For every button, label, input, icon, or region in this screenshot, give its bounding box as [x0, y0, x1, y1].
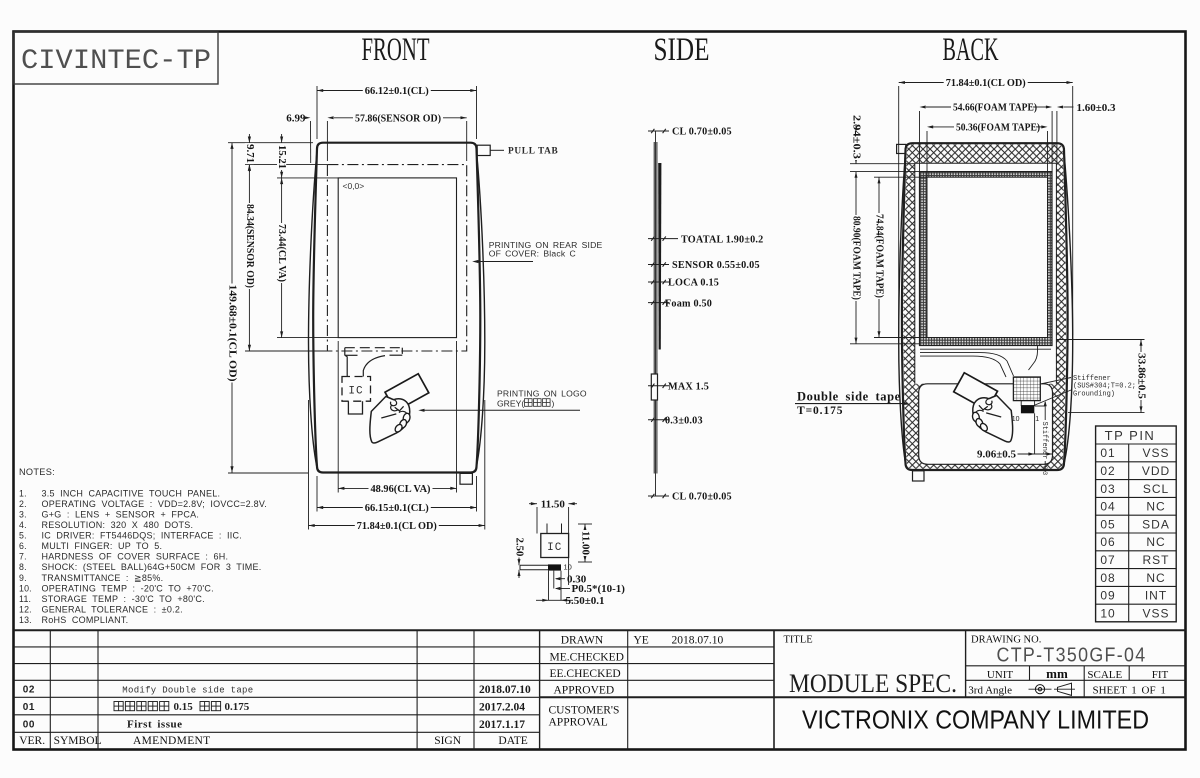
- svg-text:15.21: 15.21: [276, 145, 288, 169]
- svg-text:MODULE SPEC.: MODULE SPEC.: [789, 669, 957, 698]
- svg-text:2018.07.10: 2018.07.10: [479, 684, 531, 696]
- svg-text:T=0.175: T=0.175: [797, 405, 843, 417]
- svg-text:): ): [552, 399, 555, 409]
- svg-text:SCALE: SCALE: [1087, 669, 1122, 681]
- svg-text:01: 01: [23, 702, 35, 713]
- svg-text:3.5 INCH CAPACITIVE TOUCH PANE: 3.5 INCH CAPACITIVE TOUCH PANEL.: [42, 488, 221, 498]
- svg-text:MAX 1.5: MAX 1.5: [668, 382, 709, 393]
- svg-text:SENSOR 0.55±0.05: SENSOR 0.55±0.05: [672, 260, 760, 271]
- svg-text:AMENDMENT: AMENDMENT: [133, 735, 210, 747]
- svg-text:APPROVED: APPROVED: [554, 685, 615, 697]
- svg-text:3.: 3.: [19, 509, 27, 519]
- svg-text:0.15: 0.15: [174, 701, 194, 713]
- svg-text:66.15±0.1(CL): 66.15±0.1(CL): [365, 502, 429, 514]
- svg-text:2017.1.17: 2017.1.17: [479, 719, 525, 731]
- svg-text:0.3: 0.3: [1041, 466, 1048, 475]
- svg-text:2018.07.10: 2018.07.10: [672, 635, 724, 647]
- svg-text:08: 08: [1100, 571, 1115, 585]
- svg-text:NC: NC: [1146, 500, 1165, 514]
- svg-text:03: 03: [1100, 482, 1115, 496]
- svg-text:SYMBOL: SYMBOL: [54, 735, 102, 747]
- svg-text:05: 05: [1100, 517, 1115, 531]
- svg-text:SHEET 1 OF 1: SHEET 1 OF 1: [1093, 685, 1166, 697]
- svg-text:BACK: BACK: [943, 32, 999, 68]
- svg-text:02: 02: [23, 684, 35, 695]
- svg-text:TOATAL 1.90±0.2: TOATAL 1.90±0.2: [681, 234, 763, 245]
- svg-text:DATE: DATE: [498, 735, 527, 747]
- svg-text:OPERATING TEMP : -20'C TO +70': OPERATING TEMP : -20'C TO +70'C.: [42, 583, 214, 593]
- svg-text:2.94±0.3: 2.94±0.3: [850, 115, 862, 160]
- svg-text:CTP-T350GF-04: CTP-T350GF-04: [997, 645, 1147, 667]
- svg-text:OPERATING VOLTAGE : VDD=2.8V;: OPERATING VOLTAGE : VDD=2.8V; IOVCC=2.8V…: [42, 499, 268, 509]
- svg-text:71.84±0.1(CL OD): 71.84±0.1(CL OD): [357, 520, 437, 532]
- svg-text:TP PIN: TP PIN: [1105, 428, 1156, 443]
- svg-text:G+G : LENS + SENSOR + FPCA.: G+G : LENS + SENSOR + FPCA.: [42, 509, 200, 519]
- svg-text:mm: mm: [1046, 666, 1068, 681]
- svg-text:48.96(CL VA): 48.96(CL VA): [371, 483, 431, 495]
- svg-text:YE: YE: [634, 635, 649, 647]
- svg-text:FRONT: FRONT: [362, 32, 430, 68]
- svg-text:2017.2.04: 2017.2.04: [479, 701, 525, 713]
- svg-text:First issue: First issue: [127, 719, 182, 731]
- svg-text:11.: 11.: [19, 594, 31, 604]
- svg-text:VDD: VDD: [1142, 464, 1170, 478]
- svg-text:APPROVAL: APPROVAL: [549, 717, 608, 729]
- svg-text:CL 0.70±0.05: CL 0.70±0.05: [672, 492, 732, 503]
- svg-text:EE.CHECKED: EE.CHECKED: [550, 668, 621, 680]
- svg-text:NC: NC: [1146, 535, 1165, 549]
- svg-text:OF COVER: Black C: OF COVER: Black C: [489, 249, 576, 259]
- svg-text:ME.CHECKED: ME.CHECKED: [550, 651, 624, 663]
- svg-text:SCL: SCL: [1143, 482, 1169, 496]
- svg-text:1: 1: [1035, 416, 1039, 423]
- svg-text:IC: IC: [547, 542, 562, 554]
- svg-text:04: 04: [1100, 500, 1115, 514]
- svg-text:VICTRONIX COMPANY LIMITED: VICTRONIX COMPANY LIMITED: [802, 705, 1149, 735]
- svg-text:54.66(FOAM TAPE): 54.66(FOAM TAPE): [953, 102, 1037, 114]
- svg-text:NC: NC: [1146, 571, 1165, 585]
- svg-text:5.50±0.1: 5.50±0.1: [566, 595, 605, 607]
- svg-text:5.: 5.: [19, 531, 27, 541]
- svg-text:6.99: 6.99: [286, 113, 306, 125]
- svg-text:2.50: 2.50: [513, 538, 525, 557]
- svg-text:RoHS COMPLIANT.: RoHS COMPLIANT.: [42, 615, 129, 625]
- svg-text:84.34(SENSOR OD): 84.34(SENSOR OD): [244, 204, 256, 288]
- svg-text:(SUS#304;T=0.2;: (SUS#304;T=0.2;: [1073, 383, 1136, 391]
- svg-text:PRINTING ON LOGO: PRINTING ON LOGO: [497, 389, 587, 399]
- svg-text:50.36(FOAM TAPE): 50.36(FOAM TAPE): [956, 122, 1040, 134]
- svg-text:TITLE: TITLE: [784, 635, 813, 646]
- svg-text:6.: 6.: [19, 541, 27, 551]
- svg-text:IC DRIVER: FT5446DQS; INTERFAC: IC DRIVER: FT5446DQS; INTERFACE : IIC.: [42, 531, 243, 541]
- svg-text:13.: 13.: [19, 615, 32, 625]
- svg-text:TRANSMITTANCE : ≧85%.: TRANSMITTANCE : ≧85%.: [42, 573, 164, 583]
- svg-text:149.68±0.1(CL OD): 149.68±0.1(CL OD): [226, 285, 238, 382]
- svg-text:INT: INT: [1145, 589, 1167, 603]
- svg-text:FIT: FIT: [1152, 669, 1169, 681]
- svg-text:00: 00: [23, 720, 35, 731]
- svg-text:Modify Double side tape: Modify Double side tape: [122, 685, 253, 695]
- svg-text:33.86±0.5: 33.86±0.5: [1135, 353, 1147, 399]
- svg-text:09: 09: [1100, 589, 1115, 603]
- svg-text:PULL TAB: PULL TAB: [508, 147, 558, 157]
- svg-text:SDA: SDA: [1142, 517, 1170, 531]
- svg-text:UNIT: UNIT: [987, 669, 1014, 681]
- svg-text:Foam 0.50: Foam 0.50: [665, 298, 712, 309]
- svg-text:11.00: 11.00: [579, 531, 591, 555]
- svg-text:9.71: 9.71: [244, 144, 256, 163]
- svg-text:57.86(SENSOR OD): 57.86(SENSOR OD): [355, 112, 441, 124]
- svg-text:10: 10: [564, 562, 572, 571]
- svg-text:Grounding): Grounding): [1073, 390, 1115, 398]
- svg-text:7.: 7.: [19, 552, 27, 562]
- svg-text:10.: 10.: [19, 583, 32, 593]
- svg-text:GENERAL TOLERANCE : ±0.2.: GENERAL TOLERANCE : ±0.2.: [42, 604, 183, 614]
- svg-text:P0.5*(10-1): P0.5*(10-1): [572, 583, 626, 595]
- svg-text:01: 01: [1100, 446, 1115, 460]
- svg-text:1.60±0.3: 1.60±0.3: [1077, 102, 1117, 114]
- svg-text:CL 0.70±0.05: CL 0.70±0.05: [672, 127, 732, 138]
- svg-text:SIGN: SIGN: [434, 735, 462, 747]
- svg-text:8.: 8.: [19, 562, 27, 572]
- svg-text:07: 07: [1100, 553, 1115, 567]
- svg-text:11.50: 11.50: [541, 498, 566, 510]
- svg-text:2.: 2.: [19, 499, 27, 509]
- svg-text:VER.: VER.: [19, 735, 45, 747]
- svg-text:Double side tape: Double side tape: [797, 390, 901, 404]
- svg-text:0.3±0.03: 0.3±0.03: [665, 415, 703, 426]
- svg-text:3rd Angle: 3rd Angle: [968, 685, 1012, 697]
- svg-text:NOTES:: NOTES:: [19, 467, 55, 477]
- svg-text:10: 10: [1100, 606, 1115, 620]
- svg-text:GREY(: GREY(: [497, 399, 524, 409]
- svg-text:74.84(FOAM TAPE): 74.84(FOAM TAPE): [873, 214, 885, 298]
- svg-text:STORAGE TEMP : -30'C TO +80'C.: STORAGE TEMP : -30'C TO +80'C.: [42, 594, 205, 604]
- svg-text:RST: RST: [1143, 553, 1170, 567]
- svg-text:SHOCK: (STEEL BALL)64G+50CM FO: SHOCK: (STEEL BALL)64G+50CM FOR 3 TIME.: [42, 562, 262, 572]
- svg-text:LOCA 0.15: LOCA 0.15: [668, 278, 719, 289]
- svg-text:06: 06: [1100, 535, 1115, 549]
- svg-text:Stiffener: Stiffener: [1073, 375, 1111, 383]
- svg-text:9.: 9.: [19, 573, 27, 583]
- svg-text:MULTI FINGER: UP TO 5.: MULTI FINGER: UP TO 5.: [42, 541, 163, 551]
- svg-text:IC: IC: [348, 386, 363, 398]
- svg-text:1.: 1.: [19, 488, 27, 498]
- svg-text:73.44(CL VA): 73.44(CL VA): [276, 224, 288, 282]
- svg-text:02: 02: [1100, 464, 1115, 478]
- svg-text:RESOLUTION: 320 X 480 DOTS.: RESOLUTION: 320 X 480 DOTS.: [42, 520, 194, 530]
- svg-text:HARDNESS OF COVER SURFACE : 6H: HARDNESS OF COVER SURFACE : 6H.: [42, 552, 229, 562]
- svg-text:9.06±0.5: 9.06±0.5: [977, 449, 1017, 461]
- svg-text:0.175: 0.175: [225, 701, 250, 713]
- svg-text:4.: 4.: [19, 520, 27, 530]
- svg-text:VSS: VSS: [1142, 446, 1169, 460]
- svg-text:CUSTOMER'S: CUSTOMER'S: [549, 705, 620, 717]
- svg-text:CIVINTEC-TP: CIVINTEC-TP: [21, 46, 211, 77]
- svg-text:66.12±0.1(CL): 66.12±0.1(CL): [365, 85, 429, 97]
- svg-text:12.: 12.: [19, 604, 32, 614]
- svg-text:VSS: VSS: [1142, 606, 1169, 620]
- svg-text:71.84±0.1(CL OD): 71.84±0.1(CL OD): [946, 77, 1026, 89]
- svg-text:<0,0>: <0,0>: [343, 181, 365, 191]
- svg-text:80.90(FOAM TAPE): 80.90(FOAM TAPE): [850, 216, 862, 300]
- svg-text:SIDE: SIDE: [654, 32, 710, 68]
- svg-text:DRAWN: DRAWN: [561, 635, 604, 647]
